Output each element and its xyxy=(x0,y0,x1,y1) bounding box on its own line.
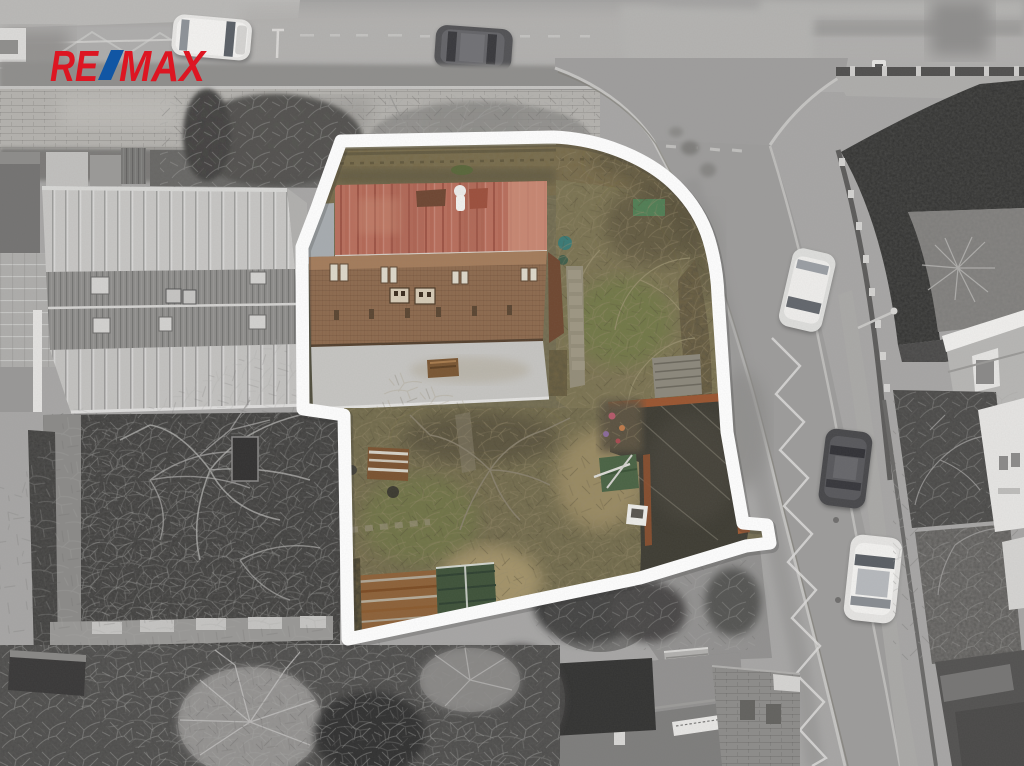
svg-text:MAX: MAX xyxy=(119,42,207,91)
svg-text:RE: RE xyxy=(50,42,99,91)
